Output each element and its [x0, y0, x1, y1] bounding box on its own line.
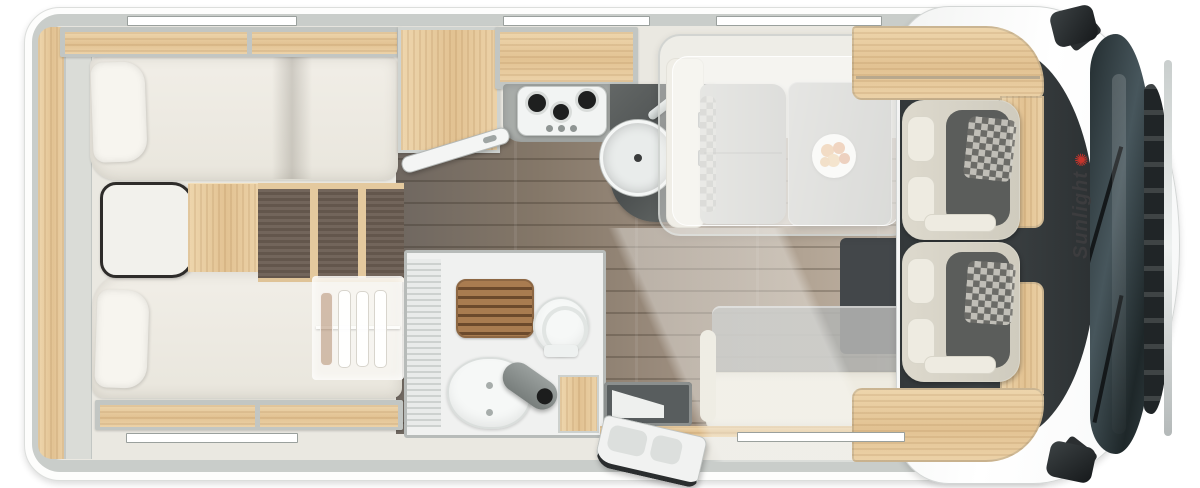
rear-wall-wardrobe — [38, 27, 66, 459]
wardrobe-hangers — [312, 276, 404, 380]
blanket-fold — [272, 57, 312, 179]
hanger-icon — [356, 291, 369, 367]
window-dinette — [716, 16, 882, 26]
window-rear-top — [127, 16, 297, 26]
cab-trim-bottom — [852, 388, 1044, 462]
cab-trim-top — [852, 26, 1044, 100]
brand-logo: ✺ Sunlight — [1060, 152, 1102, 302]
basin-drain — [486, 409, 493, 416]
sun-logo-icon: ✺ — [1072, 151, 1090, 171]
seat-armrest — [924, 214, 996, 232]
cab-seat-passenger — [902, 242, 1018, 380]
hob-knob — [558, 125, 565, 132]
cabinet-divider — [255, 400, 260, 430]
overhead-cabinet-rear — [60, 27, 402, 57]
window-rear-bottom — [126, 433, 298, 443]
shower-tambour-door — [407, 259, 441, 427]
chrome-front-edge — [1164, 60, 1172, 436]
cabinet-interior — [65, 32, 397, 54]
hanger-icon — [374, 290, 387, 368]
pillow-bottom-bed — [94, 289, 149, 389]
headrest-checker — [963, 116, 1017, 183]
gas-hob — [517, 86, 607, 136]
toilet — [533, 297, 589, 355]
window-kitchen — [503, 16, 650, 26]
shelf-divider — [310, 189, 318, 278]
bathroom — [404, 250, 606, 438]
bedside-step — [100, 182, 194, 278]
seat-bolster — [907, 258, 935, 304]
base-shelf-bottom-wall — [95, 400, 403, 430]
pillow-top-bed — [90, 61, 147, 163]
step-tread — [612, 390, 664, 418]
bathroom-cabinet — [558, 375, 599, 433]
seat-bolster — [907, 116, 935, 162]
cabinet-interior — [100, 405, 398, 427]
burner-icon — [553, 104, 569, 120]
door-handle-icon — [482, 134, 497, 144]
burner-icon — [528, 94, 546, 112]
motorhome-floorplan: ✺ Sunlight — [0, 0, 1200, 488]
headrest-checker — [964, 260, 1016, 325]
trim-shelf-line — [856, 76, 1040, 79]
basin-drain — [486, 382, 493, 389]
burner-icon — [578, 91, 596, 109]
hanger-icon — [338, 290, 351, 368]
shelf-divider — [358, 189, 366, 278]
cabinet-interior — [500, 32, 633, 82]
cab-seat-driver — [902, 100, 1018, 238]
bed-platform-edge — [66, 27, 92, 459]
brand-name: Sunlight — [1070, 171, 1093, 259]
door-pocket — [649, 434, 684, 466]
glass-reflection — [1112, 74, 1126, 434]
hanger-icon — [320, 292, 333, 366]
center-chest-top — [188, 183, 258, 272]
hob-knob — [570, 125, 577, 132]
door-pocket — [606, 424, 649, 458]
window-side-bench — [737, 432, 905, 442]
center-open-shelves — [258, 183, 404, 282]
mixer-knob — [534, 385, 556, 407]
shower-grate — [456, 279, 534, 338]
seat-armrest — [924, 356, 996, 374]
hob-knob — [546, 125, 553, 132]
toilet-base — [544, 345, 578, 357]
cabinet-divider — [247, 27, 252, 57]
sink-drain — [634, 154, 642, 162]
overhead-cabinet-kitchen — [495, 27, 638, 89]
